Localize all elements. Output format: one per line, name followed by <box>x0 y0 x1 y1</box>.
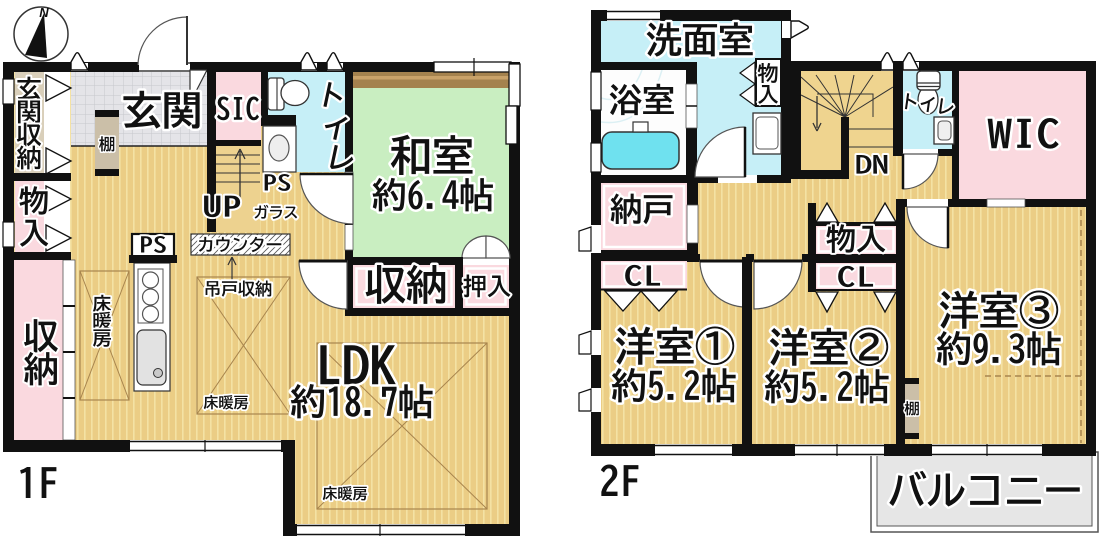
svg-text:N: N <box>39 5 49 20</box>
